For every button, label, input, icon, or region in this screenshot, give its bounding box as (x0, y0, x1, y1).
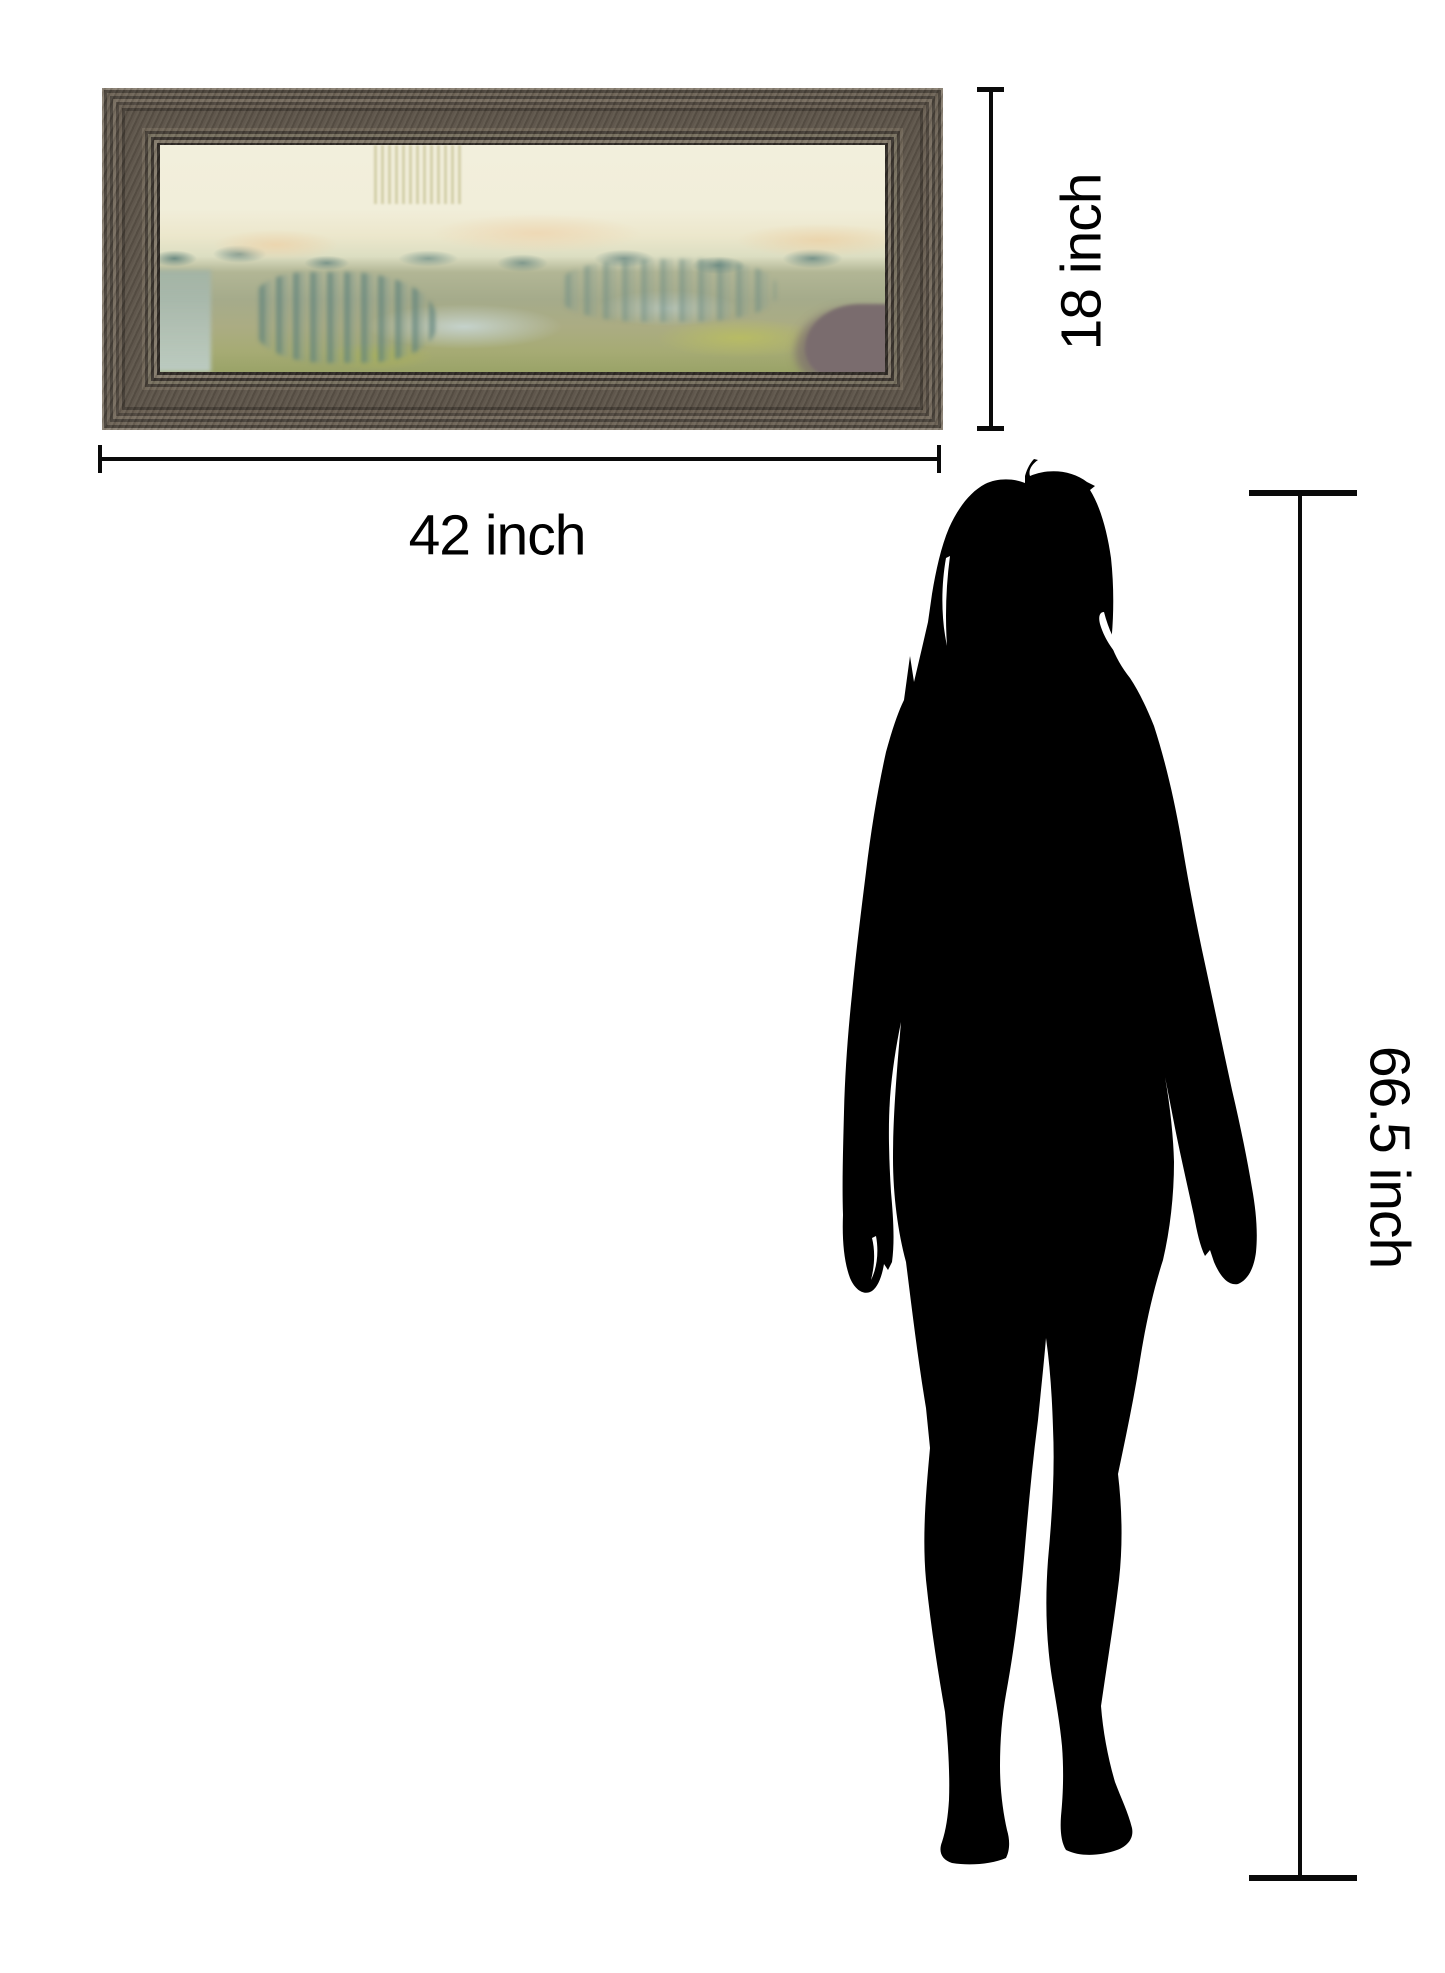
abstract-landscape-painting (160, 145, 885, 372)
width-dimension-tick-left (98, 445, 102, 473)
person-height-dimension-line (1298, 493, 1302, 1881)
framed-art-print (102, 88, 943, 430)
width-dimension-label: 42 inch (409, 508, 586, 565)
height-dimension-tick-top (977, 87, 1004, 92)
width-dimension-line (100, 457, 941, 461)
teal-brushstroke-cluster (254, 272, 435, 363)
mauve-paint-blob (805, 304, 885, 372)
height-dimension-label: 18 inch (1054, 174, 1111, 351)
woman-silhouette (830, 455, 1275, 1885)
paint-drips (370, 145, 464, 204)
blue-mist-streak (160, 270, 211, 372)
teal-brushstroke-cluster (559, 259, 777, 323)
person-height-dimension-label: 66.5 inch (1361, 1046, 1418, 1268)
size-comparison-diagram: 42 inch 18 inch 66.5 inch (0, 0, 1445, 1973)
height-dimension-tick-bottom (977, 426, 1004, 431)
height-dimension-line (989, 89, 993, 430)
